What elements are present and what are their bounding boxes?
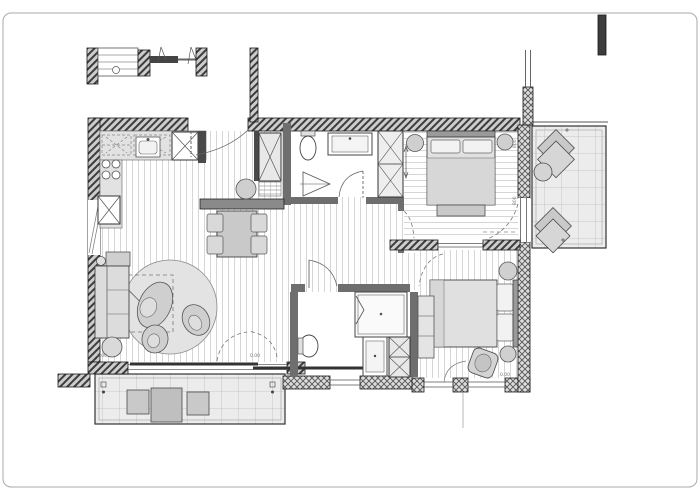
- stairwell: [87, 47, 207, 84]
- dining-chair: [207, 236, 223, 254]
- pillow: [463, 140, 492, 153]
- stool: [236, 179, 256, 199]
- console-sideboard: [200, 199, 284, 209]
- floor-lamp: [97, 257, 106, 266]
- bed1-headboard: [427, 131, 495, 137]
- sofa: [95, 266, 129, 338]
- floor-plan-canvas: 0.00 0.00 0.00 800 800: [0, 0, 700, 500]
- bed1-bench: [437, 205, 485, 216]
- pillow: [497, 284, 513, 311]
- level-marker: 0.00: [97, 353, 107, 359]
- dimension-label: 800: [512, 139, 518, 148]
- entrance-door-leaf: [150, 56, 178, 63]
- wall-stub-entry: [250, 48, 258, 122]
- terrace-chair-right: [187, 392, 209, 415]
- level-marker: 0.00: [500, 372, 510, 378]
- wall-stub-top-right: [598, 15, 606, 55]
- dining-chair: [251, 214, 267, 232]
- pillow: [497, 314, 513, 341]
- floor-plan-drawing: 0.00 0.00 0.00 800 800: [0, 0, 700, 500]
- toilet: [300, 136, 316, 160]
- nightstand-plant: [497, 134, 513, 150]
- pillow: [431, 140, 460, 153]
- hall-wardrobe: [378, 131, 408, 197]
- level-marker: 0.00: [250, 353, 260, 359]
- terrace-bottom: [95, 374, 285, 424]
- bed2-headboard: [513, 280, 518, 347]
- dining-chair: [251, 236, 267, 254]
- balcony-round-table: [534, 163, 552, 181]
- side-table: [106, 252, 130, 266]
- terrace-table: [151, 388, 182, 422]
- terrace-chair-left: [127, 390, 149, 414]
- kitchen-appliance-column: [198, 131, 206, 163]
- dresser: [418, 296, 434, 358]
- nightstand-plant: [407, 135, 424, 152]
- dimension-label: 800: [512, 196, 518, 205]
- balcony-right: [530, 122, 608, 253]
- plant: [500, 346, 516, 362]
- plant: [499, 262, 517, 280]
- dining-chair: [207, 214, 223, 232]
